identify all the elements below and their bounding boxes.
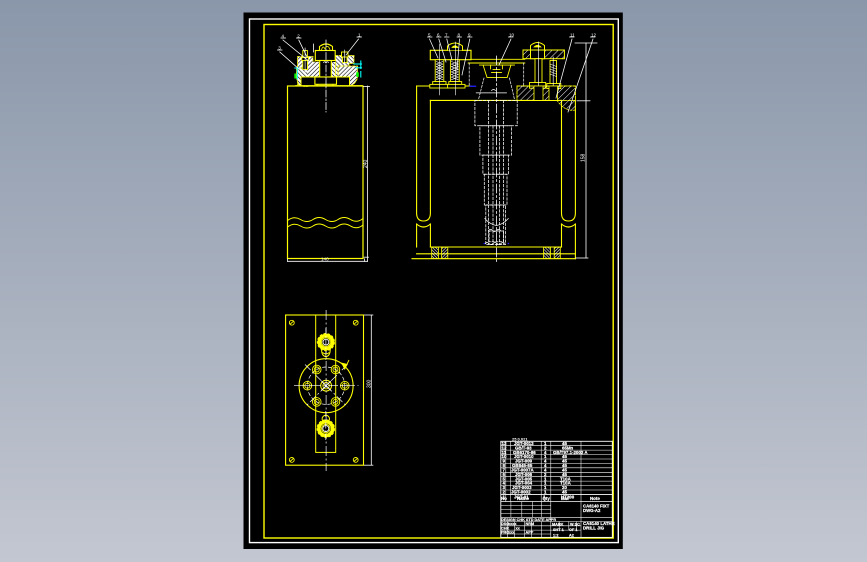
svg-text:W SC: W SC [570,522,580,526]
svg-text:Qty: Qty [543,496,551,501]
svg-text:158: 158 [581,153,587,162]
svg-text:xxxx: xxxx [508,522,517,526]
svg-text:xxx: xxx [508,531,515,535]
svg-text:DWG-A2: DWG-A2 [583,508,601,513]
svg-text:240: 240 [363,159,369,168]
svg-text:12: 12 [591,33,597,38]
svg-text:1:2: 1:2 [553,533,559,537]
svg-text:A2: A2 [569,533,574,537]
svg-text:300: 300 [367,379,373,388]
svg-text:MARK: MARK [552,522,564,526]
svg-text:10: 10 [509,33,515,38]
svg-text:140: 140 [321,257,329,262]
svg-text:Note: Note [590,496,600,501]
svg-text:Mat: Mat [561,496,569,501]
svg-text:OF 1: OF 1 [569,528,577,532]
svg-text:No: No [501,496,507,501]
svg-text:GB/T97.1-2002 A: GB/T97.1-2002 A [553,450,588,455]
svg-text:NRM: NRM [526,522,535,526]
svg-text:APP: APP [526,531,534,535]
svg-text:Name: Name [517,496,530,501]
svg-text:11: 11 [570,33,575,38]
svg-text:SHT 1: SHT 1 [553,528,564,532]
svg-text:DRILL JIG: DRILL JIG [583,525,605,530]
